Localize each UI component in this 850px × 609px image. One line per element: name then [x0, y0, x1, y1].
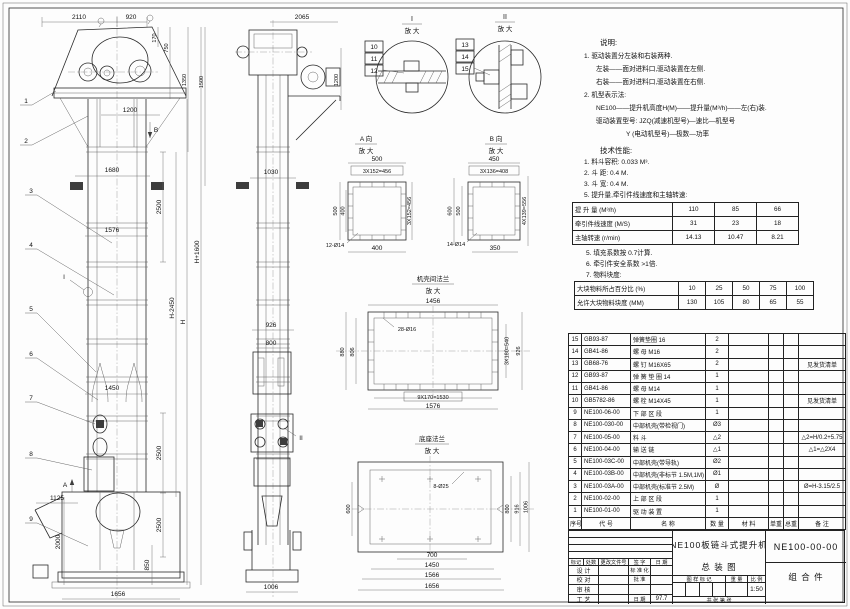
view-title: B 向 — [490, 134, 503, 143]
rev-col-date: 日 期 — [651, 559, 673, 566]
rev-col-sign: 签 字 — [629, 559, 651, 566]
dim-label: 400 — [372, 245, 383, 252]
dim-label: 750 — [164, 43, 170, 52]
bom-row: 7NE100-05-00料 斗 △2 △2=H/0.2+5.75 — [569, 432, 846, 444]
view-title: 底座法兰 — [419, 434, 446, 443]
note-line: 驱动装置型号: JZQ(减速机型号)—速比—机型号 — [596, 115, 848, 128]
bom-header: 材 料 — [729, 517, 769, 529]
detail-subtitle: 放 大 — [498, 24, 513, 33]
dim-label: 1030 — [264, 169, 279, 176]
dim-label: 500 — [456, 206, 462, 215]
dim-label: H-2450 — [169, 297, 176, 319]
dim-label: 1200 — [123, 107, 138, 114]
balloon-label: 10 — [370, 44, 378, 51]
balloon-label: 15 — [461, 66, 469, 73]
capacity-row: 牵引件线速度 (M/S)312318 — [573, 217, 799, 231]
sheet-count: 共 张 第 张 — [673, 597, 766, 604]
bom-row: 12GB93-87弹 簧 垫 圈 14 1 — [569, 370, 846, 382]
sig-date-value: 97.7 — [651, 595, 673, 605]
dim-label: 2110 — [72, 14, 86, 21]
dim-label: 916 — [515, 504, 521, 513]
dim-label: 2065 — [295, 14, 310, 21]
view-A-detail: A 向 放 大 500 3X152=456 500 400 3X152=456 … — [326, 134, 413, 252]
dim-label: 806 — [350, 347, 356, 356]
sig-check: 校 对 — [569, 576, 599, 586]
note-line: 右装——面对进料口,驱动装置在右侧. — [596, 76, 848, 89]
dim-label: 1656 — [111, 591, 126, 598]
balloon-label: 3 — [29, 188, 33, 195]
dim-label: 28-Ø16 — [398, 327, 416, 333]
view-title: 机壳间法兰 — [417, 274, 450, 283]
dim-label: 600 — [448, 206, 454, 215]
bom-row: 3NE100-03A-00中部机壳(标准节 2.5M) Ø Ø=H-3.15/2… — [569, 481, 846, 493]
balloon-label: 14 — [461, 54, 469, 61]
note-line: 2. 机型表示法: — [584, 89, 848, 102]
rev-col-mark: 标记 — [569, 559, 584, 566]
dim-label: 1576 — [105, 227, 120, 234]
notes-section: 说明: 1. 驱动装置分左装和右装两种. 左装——面对进料口,驱动装置在左侧. … — [566, 36, 848, 201]
detail-marker-I: I — [63, 274, 65, 281]
dim-label: 600 — [346, 504, 352, 513]
dim-label: 170 — [152, 33, 158, 42]
dim-label: 1006 — [264, 584, 279, 591]
view-B-detail: B 向 放 大 450 3X136=408 600 500 4X139=556 … — [447, 134, 528, 252]
bom-row: 11GB41-86螺 母 M14 1 — [569, 383, 846, 395]
tech-line: 5. 提升量,牵引件线速度和主轴转速: — [584, 190, 848, 201]
bom-row: 13GB68-76螺 钉 M16X65 2 见发货清单 — [569, 358, 846, 370]
dim-label: 1456 — [426, 298, 441, 305]
detail-marker-II: II — [299, 435, 303, 442]
flange-detail-view: 机壳间法兰 放 大 1456 28-Ø16 880 806 3X180=540 … — [336, 274, 530, 410]
bom-table: 15GB93-87弹簧垫圈 16 2 14GB41-86螺 母 M16 2 13… — [568, 333, 846, 530]
capacity-row: 主轴转速 (r/min)14.1310.478.21 — [573, 231, 799, 245]
detail-view-I: I 放 大 10 11 12 — [365, 16, 448, 113]
balloon-label: 4 — [29, 242, 33, 249]
dim-label: 4X139=556 — [522, 197, 528, 225]
balloon-label: 13 — [461, 42, 469, 49]
bom-header-row: 序号 代 号 名 称 数 量 材 料 单重 总重 备 注 — [569, 517, 846, 529]
dim-label: 1656 — [425, 583, 440, 590]
dim-label: 350 — [490, 245, 501, 252]
dim-label: 850 — [144, 559, 151, 570]
view-subtitle: 放 大 — [359, 146, 374, 155]
balloon-label: 6 — [29, 351, 33, 358]
sig-date-label: 日 期 — [629, 595, 651, 605]
dim-label: 800 — [266, 340, 277, 347]
balloon-label: 1 — [24, 98, 28, 105]
base-detail-view: 底座法兰 放 大 8-Ø25 600 800 916 1006 700 1450… — [346, 434, 535, 590]
bom-row: 5NE100-03C-00中部机壳(带导轨) Ø2 — [569, 456, 846, 468]
dim-label: 2500 — [156, 199, 163, 214]
balloon-label: 8 — [29, 451, 33, 458]
note-line: 7. 物料块度: — [586, 271, 657, 282]
sig-design: 设 计 — [569, 566, 599, 576]
stamp-mark-label: 图 样 标 记 — [673, 576, 726, 583]
bom-header: 名 称 — [631, 517, 706, 529]
dim-label: 1125 — [50, 495, 64, 502]
view-subtitle: 放 大 — [426, 286, 441, 295]
detail-title: II — [503, 14, 507, 21]
balloon-label: 5 — [29, 306, 33, 313]
sig-approve: 批 准 — [629, 576, 651, 586]
dim-label: 2500 — [156, 445, 163, 460]
bom-row: 2NE100-02-00上 部 区 段 1 — [569, 493, 846, 505]
drawing-title: NE100板链斗式提升机 — [673, 531, 766, 558]
note-line: 1. 驱动装置分左装和右装两种. — [584, 50, 848, 63]
dim-label: 500 — [333, 206, 339, 215]
tech-line: 3. 斗 宽: 0.4 M. — [584, 179, 848, 190]
view-title: A 向 — [360, 134, 372, 143]
weight-label: 重 量 — [726, 576, 748, 583]
drawing-number: NE100-00-00 — [766, 531, 846, 563]
dim-label: 1200 — [334, 74, 340, 86]
dim-label: 3X180=540 — [505, 337, 511, 365]
dim-label: 400 — [341, 206, 347, 215]
balloon-label: 12 — [370, 68, 378, 75]
sig-process: 工 艺 — [569, 595, 599, 605]
lump-size-table: 大块物料所占百分比 (%)10255075100 允许大块物料块度 (MM)13… — [574, 281, 814, 310]
sig-audit: 审 核 — [569, 585, 599, 595]
view-subtitle: 放 大 — [489, 146, 504, 155]
balloon-label: 7 — [29, 395, 33, 402]
bom-header: 序号 — [569, 517, 582, 529]
dim-label: 1566 — [425, 572, 440, 579]
dim-label: 926 — [516, 346, 522, 355]
detail-view-II: II 放 大 13 14 15 — [456, 14, 541, 113]
dim-label: 700 — [427, 552, 438, 559]
balloon-label: 11 — [371, 56, 378, 63]
side-elevation-view — [235, 20, 340, 597]
dim-label: 3X152=456 — [407, 197, 413, 225]
drawing-sheet-name: 总 装 图 — [673, 558, 766, 576]
bom-row: 6NE100-04-00输 送 链 △1 △1=△2X4 — [569, 444, 846, 456]
note-line: 6. 牵引件安全系数 >1倍. — [586, 260, 657, 271]
lump-row: 允许大块物料块度 (MM)130105806555 — [575, 296, 814, 310]
bom-header: 代 号 — [582, 517, 631, 529]
view-subtitle: 放 大 — [425, 446, 440, 455]
balloon-label: 2 — [24, 138, 28, 145]
dim-label: 2500 — [156, 517, 163, 532]
scale-value: 1:50 — [748, 583, 766, 597]
detail-title: I — [411, 16, 413, 23]
bom-header: 备 注 — [799, 517, 846, 529]
bom-header: 总重 — [784, 517, 799, 529]
dim-label: 1450 — [425, 562, 440, 569]
dim-label: 9X170=1530 — [417, 395, 448, 401]
note-line: 左装——面对进料口,驱动装置在左侧. — [596, 63, 848, 76]
dim-label: 12-Ø14 — [326, 243, 344, 249]
side-view-dimensions: 2065 1200 1030 926 800 1006 II — [246, 14, 341, 592]
part-class: 组 合 件 — [766, 563, 846, 604]
detail-subtitle: 放 大 — [405, 26, 420, 35]
dim-label: 1450 — [105, 385, 120, 392]
dim-label: 3X152=456 — [363, 169, 391, 175]
front-elevation-view — [33, 15, 190, 598]
rev-col-docno: 更改文件号 — [599, 559, 629, 566]
dim-label: H+1600 — [194, 240, 201, 263]
view-arrow-B: B — [154, 127, 158, 134]
bom-row: 9NE100-06-00下 部 区 段 1 — [569, 407, 846, 419]
view-arrow-A: A — [63, 482, 68, 489]
note-line: NE100——提升机高度H(M)——提升量(M³/h)——左(右)装. — [596, 102, 848, 115]
dim-label: 450 — [489, 156, 500, 163]
lump-row: 大块物料所占百分比 (%)10255075100 — [575, 282, 814, 296]
dim-label: 1006 — [524, 501, 530, 513]
dim-label: 1680 — [105, 167, 120, 174]
dim-label: 500 — [372, 156, 383, 163]
dim-label: 880 — [340, 347, 346, 356]
dim-label: 1350 — [182, 74, 188, 86]
bom-row: 4NE100-03B-00中部机壳(非标节 1.5M,1M) Ø1 — [569, 468, 846, 480]
rev-col-count: 处数 — [584, 559, 599, 566]
bom-row: 10GB5782-86螺 栓 M14X45 1 见发货清单 — [569, 395, 846, 407]
dim-label: 2000 — [55, 534, 62, 549]
tech-heading: 技术性能: — [600, 144, 848, 157]
note-line: 5. 填充系数按 0.7计算. — [586, 249, 657, 260]
dim-label: H — [180, 319, 187, 324]
drawing-sheet: 2110 920 170 750 1350 1500 1200 1680 250… — [0, 0, 850, 609]
dim-label: 800 — [505, 504, 511, 513]
capacity-row: 提 升 量 (M³/h)1108566 — [573, 203, 799, 217]
note-line: Y (电动机型号)—极数—功率 — [626, 128, 848, 141]
bom-row: 8NE100-030-00中部机壳(带检视门) Ø3 — [569, 419, 846, 431]
dim-label: 920 — [126, 14, 137, 21]
dim-label: 1500 — [199, 76, 205, 88]
dim-label: 14-Ø14 — [447, 242, 465, 248]
balloon-label: 9 — [29, 516, 33, 523]
bom-row: 15GB93-87弹簧垫圈 16 2 — [569, 334, 846, 346]
dim-label: 8-Ø25 — [433, 484, 448, 490]
notes-heading: 说明: — [600, 36, 848, 49]
dim-label: 926 — [266, 322, 277, 329]
notes2-section: 5. 填充系数按 0.7计算. 6. 牵引件安全系数 >1倍. 7. 物料块度: — [586, 249, 657, 281]
dim-label: 1576 — [426, 403, 441, 410]
front-view-balloons: 1 2 3 4 5 6 7 8 9 I A B — [20, 91, 158, 546]
sig-standard: 标 准 化 — [629, 566, 651, 576]
dim-label: 3X136=408 — [480, 169, 508, 175]
bom-row: 1NE100-01-00驱 动 装 置 1 — [569, 505, 846, 517]
tech-line: 1. 料斗容积: 0.033 M³. — [584, 157, 848, 168]
title-block: 标记 处数 更改文件号 签 字 日 期 设 计 标 准 化 校 对 批 准 审 … — [568, 530, 845, 603]
scale-label: 比 例 — [748, 576, 766, 583]
bom-header: 单重 — [769, 517, 784, 529]
capacity-table: 提 升 量 (M³/h)1108566 牵引件线速度 (M/S)312318 主… — [572, 202, 799, 245]
bom-row: 14GB41-86螺 母 M16 2 — [569, 346, 846, 358]
tech-line: 2. 斗 距: 0.4 M. — [584, 168, 848, 179]
bom-header: 数 量 — [706, 517, 729, 529]
